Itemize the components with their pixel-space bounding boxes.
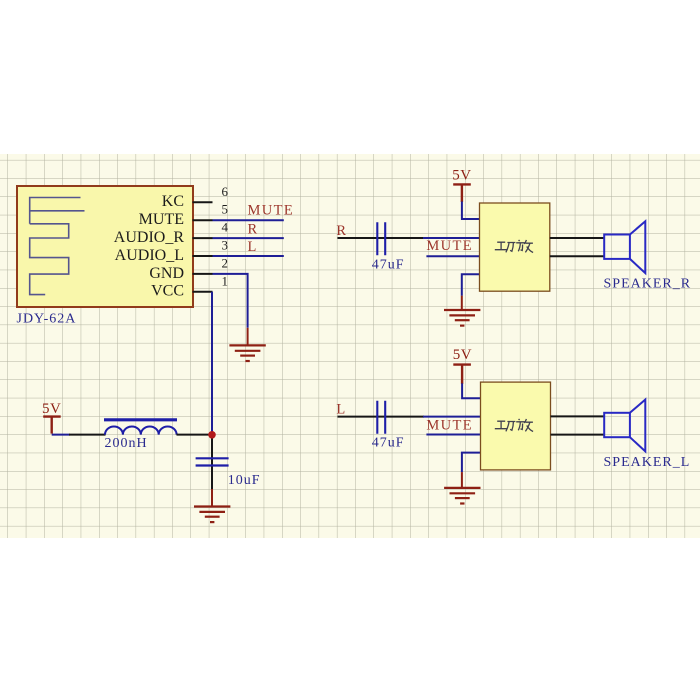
svg-text:R: R — [248, 222, 259, 238]
svg-text:R: R — [336, 223, 347, 239]
svg-text:JDY-62A: JDY-62A — [17, 311, 77, 326]
svg-text:47uF: 47uF — [372, 436, 405, 451]
svg-text:10uF: 10uF — [228, 473, 261, 488]
svg-text:MUTE: MUTE — [139, 211, 184, 228]
svg-text:4: 4 — [221, 220, 228, 235]
svg-text:5V: 5V — [453, 347, 472, 363]
svg-text:MUTE: MUTE — [248, 203, 295, 219]
svg-text:MUTE: MUTE — [426, 238, 473, 254]
svg-text:5V: 5V — [42, 401, 61, 417]
svg-text:200nH: 200nH — [105, 436, 148, 451]
svg-text:MUTE: MUTE — [426, 418, 473, 434]
svg-text:5: 5 — [221, 202, 228, 217]
svg-text:3: 3 — [221, 238, 228, 253]
svg-text:AUDIO_L: AUDIO_L — [115, 247, 184, 264]
svg-text:SPEAKER_R: SPEAKER_R — [604, 277, 692, 292]
svg-text:SPEAKER_L: SPEAKER_L — [604, 455, 691, 470]
svg-text:2: 2 — [221, 255, 228, 270]
svg-text:L: L — [248, 239, 258, 255]
svg-text:AUDIO_R: AUDIO_R — [114, 229, 185, 246]
svg-text:KC: KC — [162, 193, 184, 210]
svg-text:GND: GND — [149, 265, 184, 282]
svg-text:L: L — [336, 402, 346, 418]
svg-text:5V: 5V — [452, 168, 471, 184]
svg-text:VCC: VCC — [151, 283, 184, 300]
svg-text:47uF: 47uF — [372, 258, 405, 273]
svg-text:6: 6 — [221, 184, 228, 199]
svg-text:1: 1 — [221, 273, 228, 288]
